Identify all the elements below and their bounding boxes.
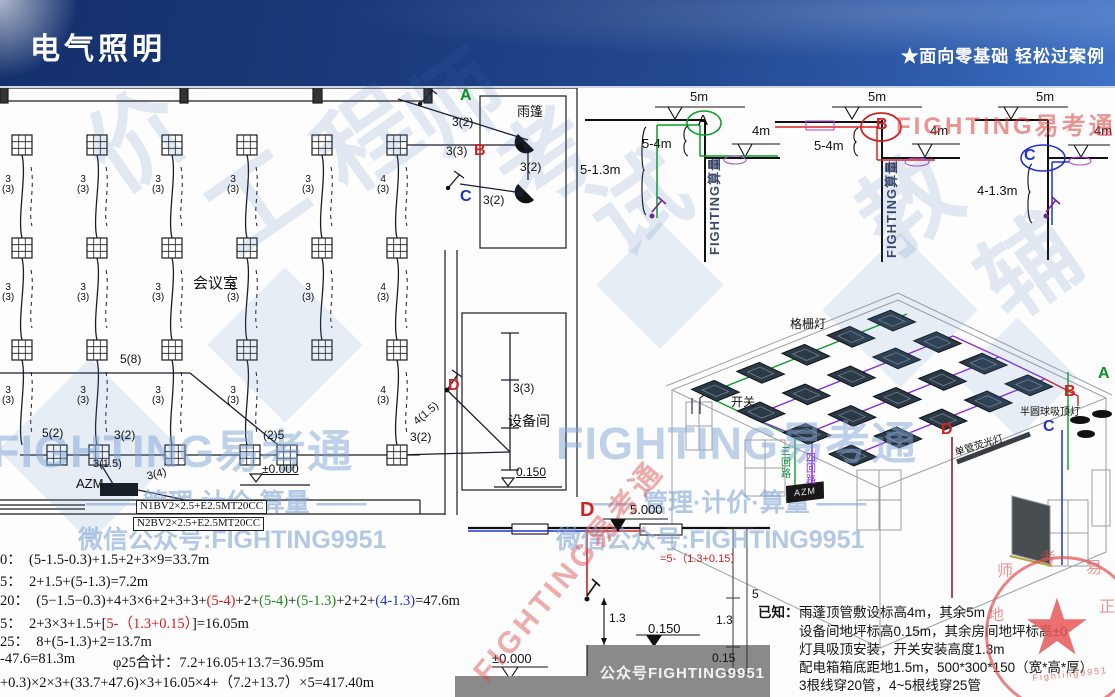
slide: 电气照明 ★面向零基础 轻松过案例	[0, 0, 1115, 697]
isometric-grille-lights	[692, 310, 1053, 466]
elevation-diagrams	[585, 107, 1110, 262]
bottom-elevation-drawing	[455, 519, 770, 697]
floor-plan-wires	[0, 87, 534, 503]
header-tagline: ★面向零基础 轻松过案例	[901, 42, 1105, 67]
page-title: 电气照明	[30, 24, 166, 68]
slide-header: 电气照明 ★面向零基础 轻松过案例	[0, 0, 1115, 88]
grid-light-symbols	[12, 135, 407, 465]
line-art	[0, 0, 1115, 697]
